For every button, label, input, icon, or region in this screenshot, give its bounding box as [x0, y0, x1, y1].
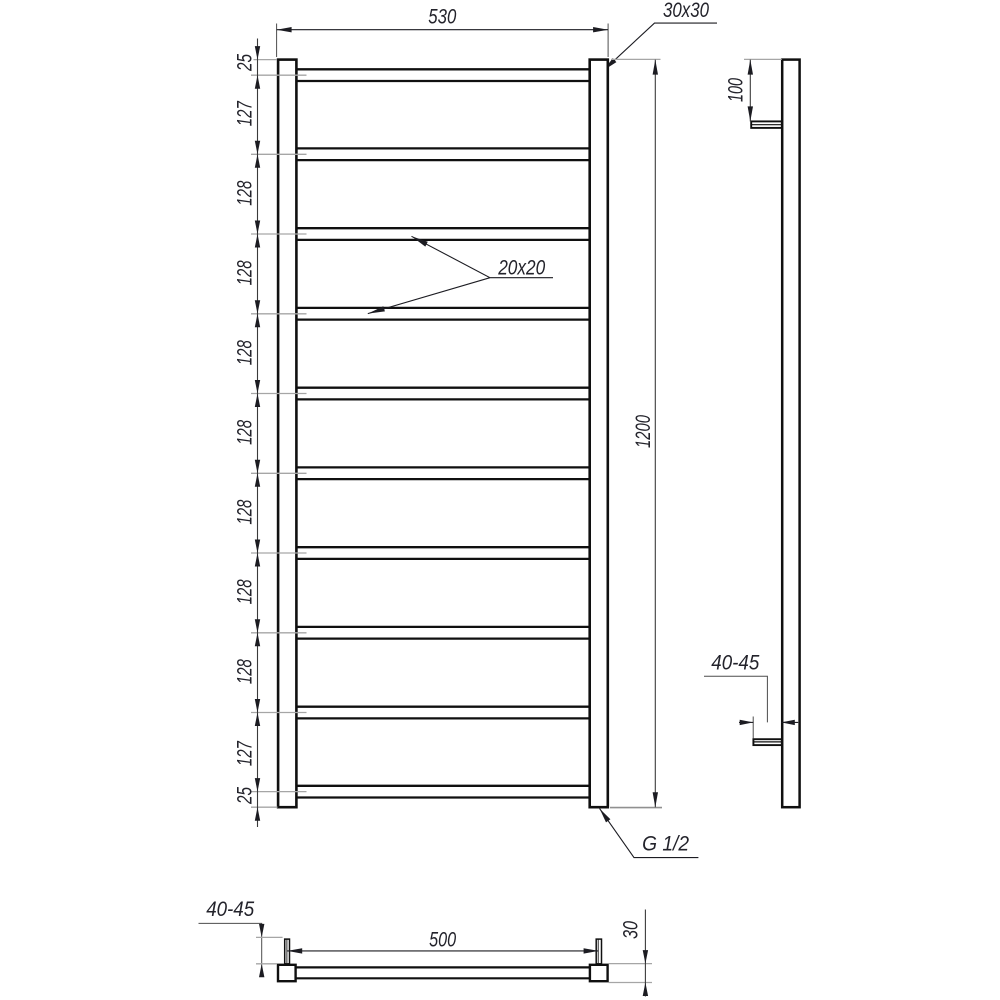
svg-text:30x30: 30x30: [663, 0, 709, 22]
svg-text:128: 128: [233, 260, 256, 285]
svg-text:128: 128: [233, 499, 256, 524]
svg-text:128: 128: [233, 180, 256, 205]
svg-text:127: 127: [233, 740, 256, 766]
svg-text:100: 100: [724, 78, 747, 102]
svg-text:G 1/2: G 1/2: [642, 833, 689, 856]
svg-text:40-45: 40-45: [206, 898, 254, 921]
svg-text:20x20: 20x20: [497, 257, 545, 280]
svg-text:128: 128: [233, 340, 256, 365]
svg-text:25: 25: [233, 787, 256, 805]
svg-text:30: 30: [620, 921, 643, 939]
svg-text:127: 127: [233, 100, 256, 126]
svg-text:128: 128: [233, 579, 256, 604]
svg-text:1200: 1200: [632, 415, 655, 448]
svg-text:530: 530: [428, 6, 456, 29]
svg-text:500: 500: [429, 928, 456, 951]
svg-text:128: 128: [233, 420, 256, 445]
svg-text:40-45: 40-45: [711, 652, 759, 675]
svg-text:25: 25: [233, 54, 256, 72]
svg-text:128: 128: [233, 659, 256, 684]
